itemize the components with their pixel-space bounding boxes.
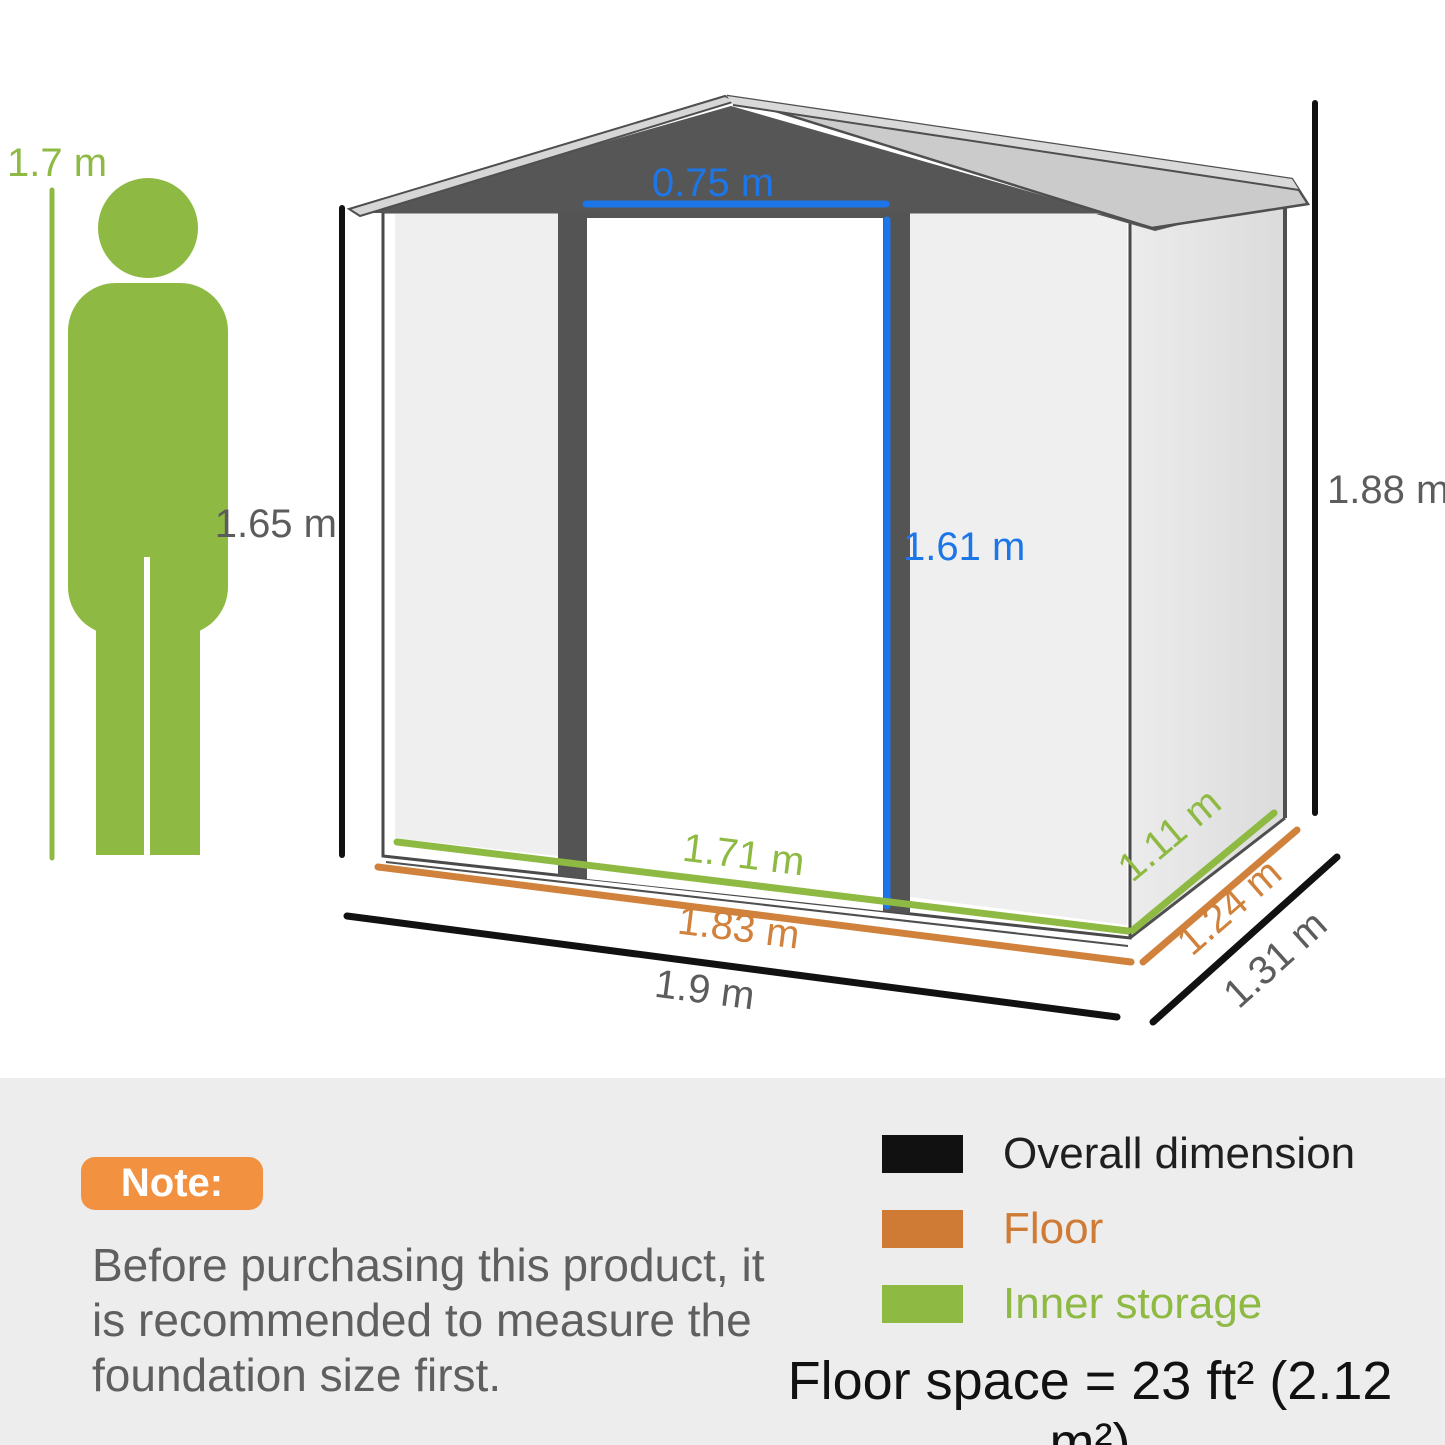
wall-panel-left <box>395 214 558 856</box>
dimension-label-inner-height: 1.65 m <box>215 502 337 546</box>
info-band: Note: Before purchasing this product, it… <box>0 1078 1445 1445</box>
note-text: Before purchasing this product, it is re… <box>92 1238 792 1403</box>
infographic-canvas: 1.7 m 1.65 m 0.75 m 1.61 m 1.71 m <box>0 0 1445 1445</box>
note-badge: Note: <box>81 1157 263 1210</box>
person-silhouette <box>68 178 228 855</box>
wall-panel-right <box>910 214 1127 925</box>
door-opening <box>587 218 883 911</box>
note-line-2: is recommended to measure the <box>92 1293 792 1348</box>
dimension-label-overall-height: 1.88 m <box>1327 468 1445 512</box>
legend-label-floor: Floor <box>1003 1207 1103 1251</box>
legend-swatch-overall-dimension <box>882 1135 963 1173</box>
dimension-label-person-height: 1.7 m <box>7 141 107 185</box>
legend-label-inner-storage: Inner storage <box>1003 1282 1262 1326</box>
dimension-label-door-width: 0.75 m <box>652 161 774 205</box>
note-line-3: foundation size first. <box>92 1348 792 1403</box>
legend-swatch-floor <box>882 1210 963 1248</box>
legend-swatch-inner-storage <box>882 1285 963 1323</box>
door-pillar-left <box>558 205 587 879</box>
note-line-1: Before purchasing this product, it <box>92 1238 792 1293</box>
legend-label-overall-dimension: Overall dimension <box>1003 1132 1355 1176</box>
floor-space-text: Floor space = 23 ft² (2.12 m²) <box>740 1350 1440 1445</box>
person-head <box>98 178 198 278</box>
shed-dimension-diagram: 1.7 m 1.65 m 0.75 m 1.61 m 1.71 m <box>0 0 1445 1078</box>
person-leg-gap <box>144 557 150 855</box>
dimension-label-door-height: 1.61 m <box>903 525 1025 569</box>
